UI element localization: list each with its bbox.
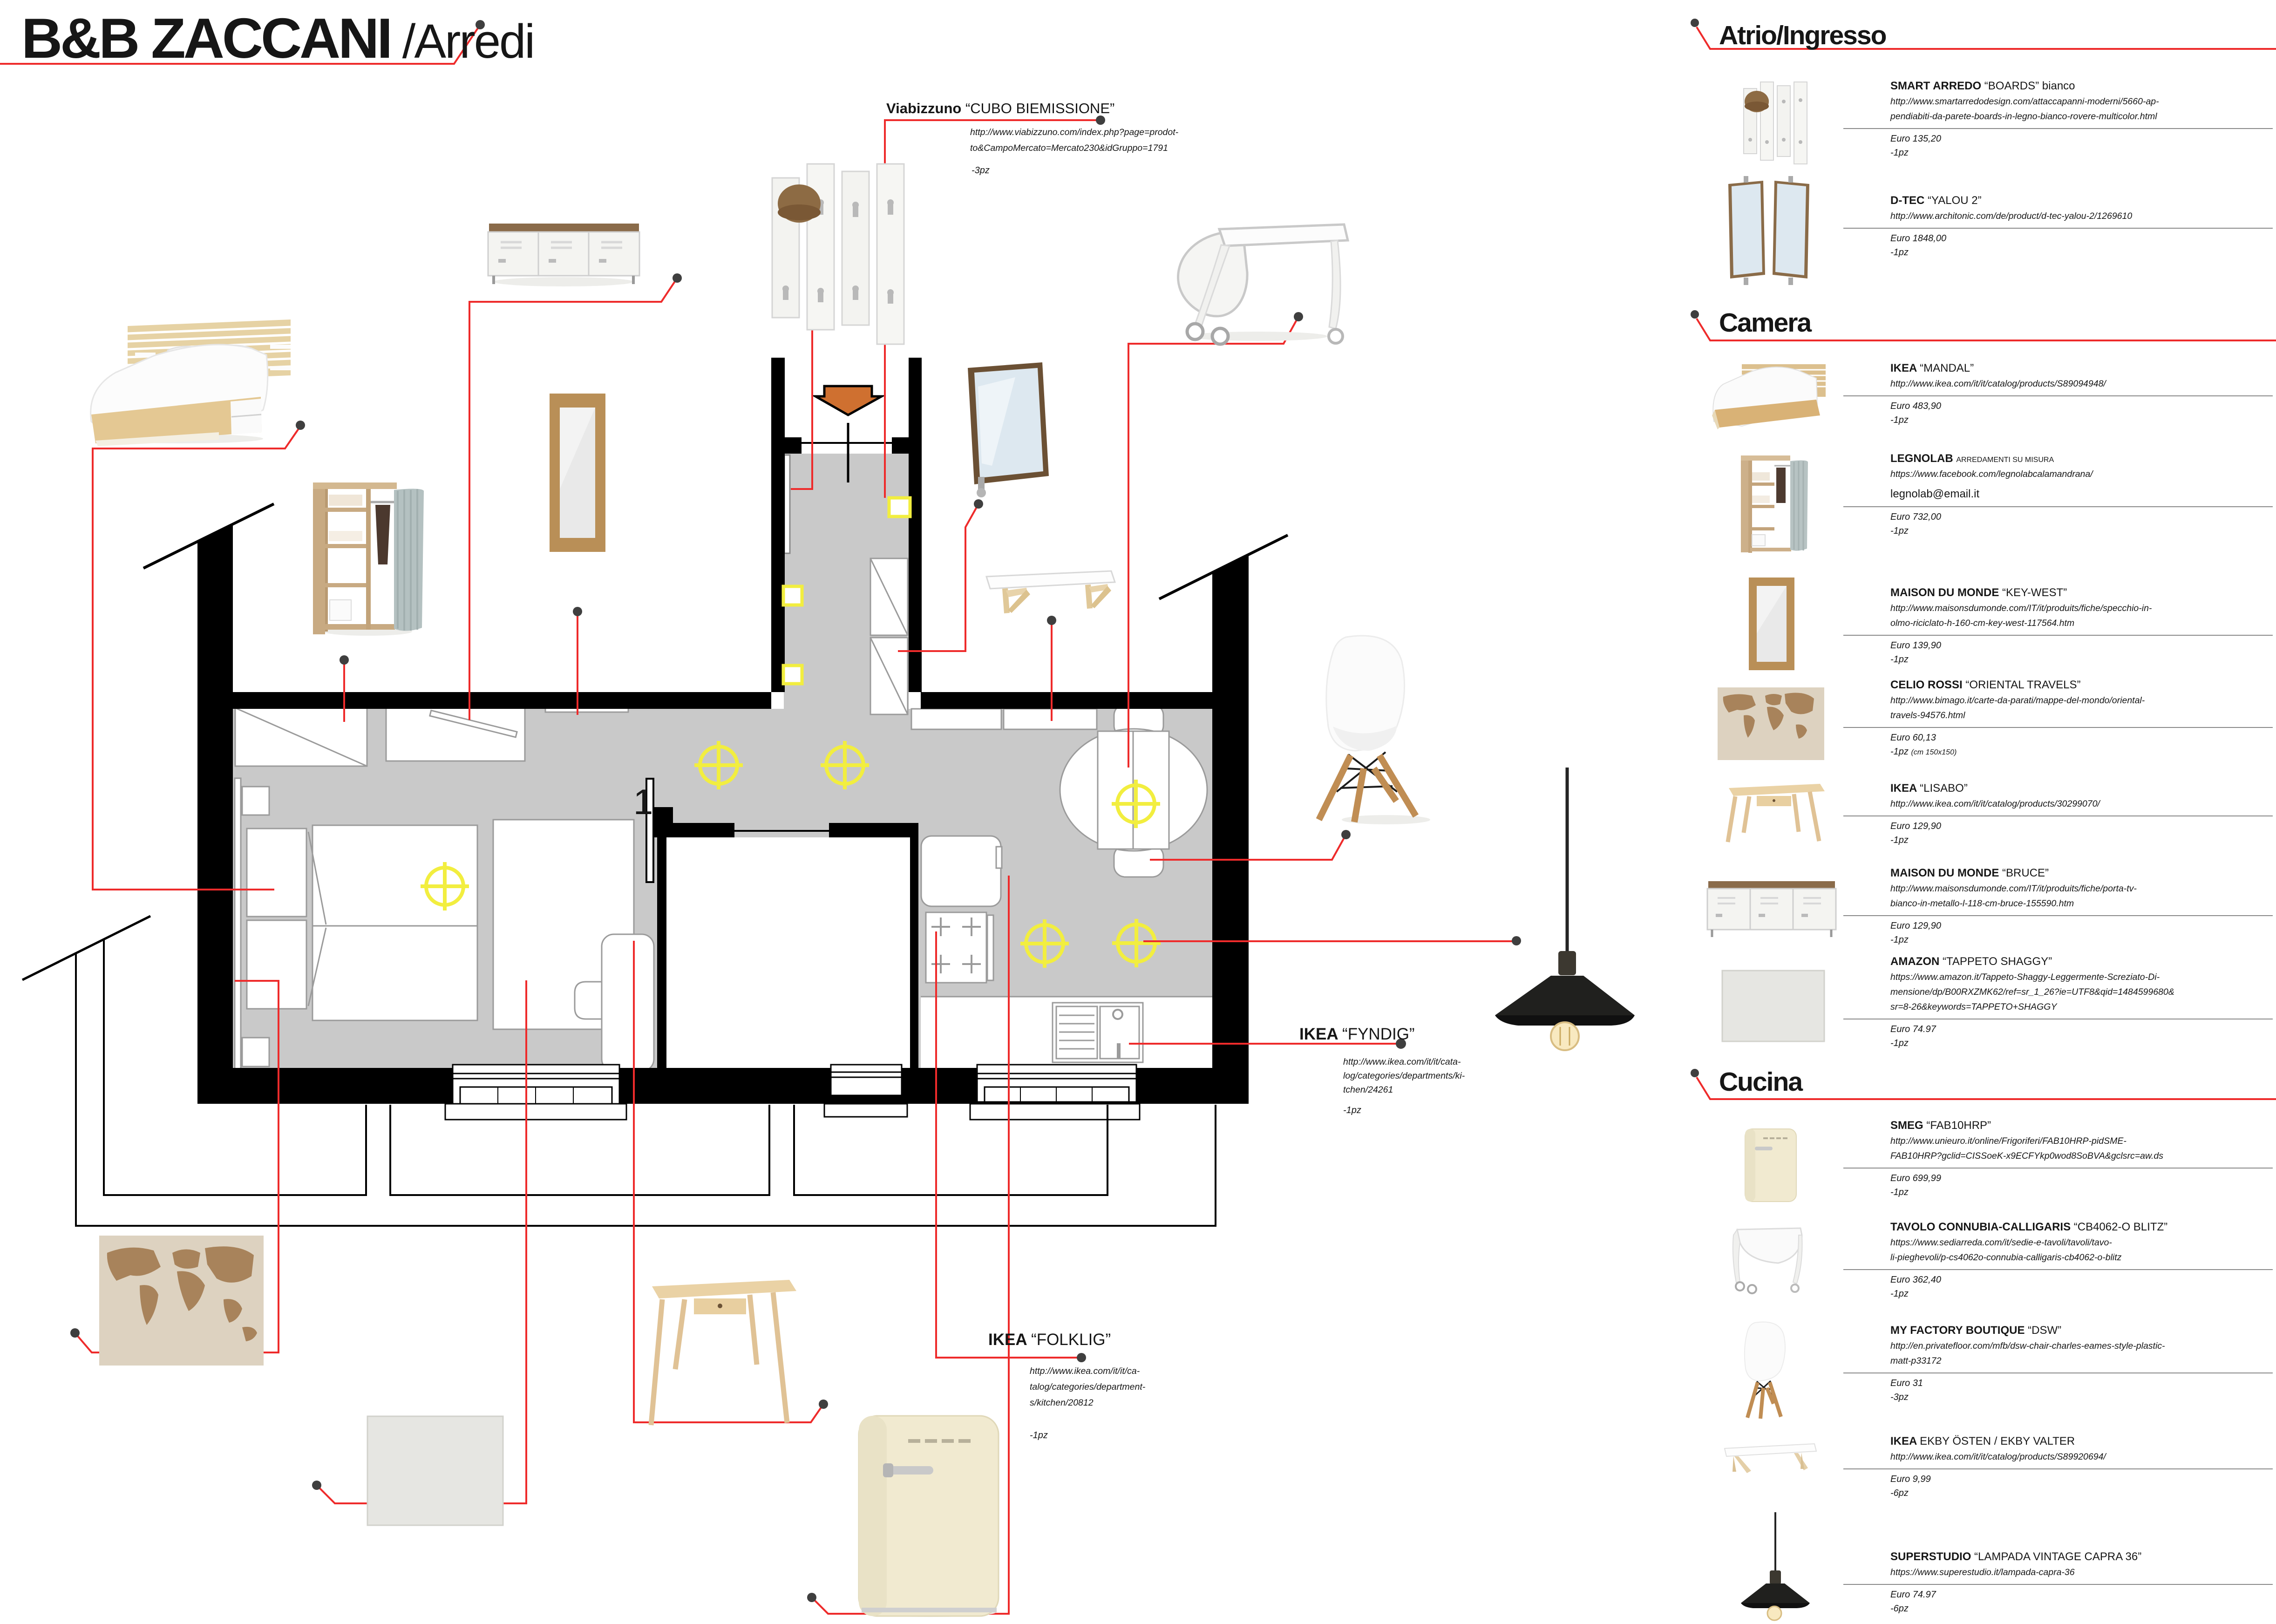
svg-text:Euro 699,99: Euro 699,99	[1890, 1173, 1941, 1183]
svg-text:http://www.viabizzuno.com/inde: http://www.viabizzuno.com/index.php?page…	[970, 127, 1179, 137]
svg-text:Euro 139,90: Euro 139,90	[1890, 640, 1941, 651]
svg-text:-6pz: -6pz	[1890, 1488, 1909, 1498]
svg-text:http://www.architonic.com/de/p: http://www.architonic.com/de/product/d-t…	[1890, 211, 2132, 221]
svg-text:-1pz: -1pz	[1890, 1289, 1909, 1299]
svg-text:Euro 60,13: Euro 60,13	[1890, 733, 1936, 743]
svg-text:matt-p33172: matt-p33172	[1890, 1356, 1942, 1366]
svg-text:talog/categories/department-: talog/categories/department-	[1030, 1382, 1146, 1392]
svg-text:-1pz: -1pz	[1890, 1038, 1909, 1048]
svg-text:Euro 74.97: Euro 74.97	[1890, 1024, 1936, 1034]
svg-text:MAISON DU MONDE “KEY-WEST”: MAISON DU MONDE “KEY-WEST”	[1890, 586, 2067, 599]
svg-text:https://www.superestudio.it/la: https://www.superestudio.it/lampada-capr…	[1890, 1567, 2075, 1577]
svg-text:bianco-in-metallo-l-118-cm-bru: bianco-in-metallo-l-118-cm-bruce-155590.…	[1890, 898, 2074, 909]
svg-text:mensione/dp/B00RXZMK62/ref=sr_: mensione/dp/B00RXZMK62/ref=sr_1_26?ie=UT…	[1890, 987, 2174, 997]
svg-text:pendiabiti-da-parete-boards-in: pendiabiti-da-parete-boards-in-legno-bia…	[1890, 111, 2157, 122]
svg-text:Atrio/Ingresso: Atrio/Ingresso	[1719, 20, 1886, 50]
svg-text:-3pz: -3pz	[1890, 1392, 1909, 1402]
svg-text:Viabizzuno “CUBO BIEMISSIONE”: Viabizzuno “CUBO BIEMISSIONE”	[886, 100, 1114, 116]
svg-text:https://www.amazon.it/Tappeto-: https://www.amazon.it/Tappeto-Shaggy-Leg…	[1890, 972, 2160, 982]
svg-text:-1pz: -1pz	[1890, 935, 1909, 945]
svg-text:AMAZON “TAPPETO SHAGGY”: AMAZON “TAPPETO SHAGGY”	[1890, 955, 2052, 968]
svg-text:IKEA “FOLKLIG”: IKEA “FOLKLIG”	[988, 1331, 1111, 1349]
svg-text:MY FACTORY BOUTIQUE “DSW”: MY FACTORY BOUTIQUE “DSW”	[1890, 1324, 2061, 1337]
svg-text:http://www.unieuro.it/online/F: http://www.unieuro.it/online/Frigoriferi…	[1890, 1136, 2127, 1146]
svg-text:-1pz: -1pz	[1890, 835, 1909, 845]
svg-text:http://www.smartarredodesign.c: http://www.smartarredodesign.com/attacca…	[1890, 96, 2159, 107]
svg-text:Cucina: Cucina	[1719, 1067, 1803, 1097]
svg-text:Euro 1848,00: Euro 1848,00	[1890, 233, 1946, 244]
svg-text:FAB10HRP?gclid=CISSoeK-x9ECFYk: FAB10HRP?gclid=CISSoeK-x9ECFYkp0wod8SoBV…	[1890, 1151, 2163, 1161]
svg-text:1: 1	[633, 782, 653, 822]
svg-text:http://www.ikea.com/it/it/cata: http://www.ikea.com/it/it/catalog/produc…	[1890, 1452, 2107, 1462]
svg-text:Euro 31: Euro 31	[1890, 1378, 1923, 1388]
svg-text:-6pz: -6pz	[1890, 1604, 1909, 1614]
svg-text:li-pieghevoli/p-cs4062o-connub: li-pieghevoli/p-cs4062o-connubia-calliga…	[1890, 1252, 2122, 1263]
svg-text:IKEA “MANDAL”: IKEA “MANDAL”	[1890, 362, 1974, 374]
svg-text:Euro 732,00: Euro 732,00	[1890, 512, 1941, 522]
svg-text:Euro 129,90: Euro 129,90	[1890, 921, 1941, 931]
svg-text:Euro 9,99: Euro 9,99	[1890, 1474, 1931, 1484]
svg-text:http://www.ikea.com/it/it/cata: http://www.ikea.com/it/it/catalog/produc…	[1890, 799, 2101, 809]
svg-text:-1pz (cm 150x150): -1pz (cm 150x150)	[1890, 747, 1957, 757]
svg-text:https://www.sediarreda.com/it/: https://www.sediarreda.com/it/sedie-e-ta…	[1890, 1237, 2112, 1248]
svg-text:CELIO ROSSI “ORIENTAL TRAVELS”: CELIO ROSSI “ORIENTAL TRAVELS”	[1890, 679, 2081, 691]
svg-text:s/kitchen/20812: s/kitchen/20812	[1030, 1398, 1094, 1408]
svg-text:-1pz: -1pz	[1890, 1187, 1909, 1197]
svg-text:B&B ZACCANI /Arredi: B&B ZACCANI /Arredi	[21, 7, 534, 70]
svg-text:http://www.ikea.com/it/it/ca-: http://www.ikea.com/it/it/ca-	[1030, 1366, 1140, 1376]
svg-text:http://www.ikea.com/it/it/cata: http://www.ikea.com/it/it/catalog/produc…	[1890, 379, 2107, 389]
svg-text:http://en.privatefloor.com/mfb: http://en.privatefloor.com/mfb/dsw-chair…	[1890, 1341, 2165, 1351]
svg-text:Euro 483,90: Euro 483,90	[1890, 401, 1941, 411]
svg-text:sr=8-26&keywords=TAPPETO+SHAGG: sr=8-26&keywords=TAPPETO+SHAGGY	[1890, 1002, 2058, 1012]
svg-text:SMEG “FAB10HRP”: SMEG “FAB10HRP”	[1890, 1119, 1991, 1132]
svg-text:http://www.maisonsdumonde.com/: http://www.maisonsdumonde.com/IT/it/prod…	[1890, 883, 2137, 894]
svg-text:SUPERSTUDIO “LAMPADA VINTAGE C: SUPERSTUDIO “LAMPADA VINTAGE CAPRA 36”	[1890, 1550, 2141, 1563]
svg-text:-1pz: -1pz	[1890, 415, 1909, 425]
svg-text:olmo-riciclato-h-160-cm-key-we: olmo-riciclato-h-160-cm-key-west-117564.…	[1890, 618, 2074, 628]
svg-text:D-TEC “YALOU 2”: D-TEC “YALOU 2”	[1890, 194, 1982, 207]
svg-text:-1pz: -1pz	[1890, 654, 1909, 665]
svg-text:http://www.bimago.it/carte-da-: http://www.bimago.it/carte-da-parati/map…	[1890, 695, 2145, 706]
svg-text:Euro 129,90: Euro 129,90	[1890, 821, 1941, 831]
svg-text:Euro 74.97: Euro 74.97	[1890, 1590, 1936, 1600]
svg-text:Camera: Camera	[1719, 308, 1812, 338]
svg-text:Euro 362,40: Euro 362,40	[1890, 1275, 1941, 1285]
svg-text:tchen/24261: tchen/24261	[1343, 1085, 1393, 1095]
svg-text:log/categories/departments/ki-: log/categories/departments/ki-	[1343, 1071, 1465, 1081]
svg-text:IKEA EKBY ÖSTEN / EKBY VALTER: IKEA EKBY ÖSTEN / EKBY VALTER	[1890, 1435, 2075, 1447]
svg-text:http://www.maisonsdumonde.com/: http://www.maisonsdumonde.com/IT/it/prod…	[1890, 603, 2152, 613]
svg-text:Euro 135,20: Euro 135,20	[1890, 134, 1941, 144]
svg-text:to&CampoMercato=Mercato230&idG: to&CampoMercato=Mercato230&idGruppo=1791	[970, 143, 1168, 153]
svg-text:-1pz: -1pz	[1030, 1430, 1048, 1441]
svg-text:-1pz: -1pz	[1343, 1105, 1361, 1115]
svg-text:legnolab@email.it: legnolab@email.it	[1890, 488, 1979, 500]
svg-text:SMART ARREDO “BOARDS” bianco: SMART ARREDO “BOARDS” bianco	[1890, 80, 2075, 92]
svg-text:MAISON DU MONDE “BRUCE”: MAISON DU MONDE “BRUCE”	[1890, 867, 2049, 879]
svg-text:-1pz: -1pz	[1890, 247, 1909, 258]
svg-text:IKEA “LISABO”: IKEA “LISABO”	[1890, 782, 1968, 795]
svg-text:-1pz: -1pz	[1890, 526, 1909, 536]
svg-text:-3pz: -3pz	[972, 165, 990, 176]
svg-text:http://www.ikea.com/it/it/cata: http://www.ikea.com/it/it/cata-	[1343, 1057, 1461, 1067]
svg-text:IKEA “FYNDIG”: IKEA “FYNDIG”	[1299, 1025, 1415, 1043]
svg-text:travels-94576.html: travels-94576.html	[1890, 710, 1965, 720]
svg-text:TAVOLO CONNUBIA-CALLIGARIS “CB: TAVOLO CONNUBIA-CALLIGARIS “CB4062-O BLI…	[1890, 1221, 2167, 1233]
svg-text:LEGNOLAB ARREDAMENTI SU MISURA: LEGNOLAB ARREDAMENTI SU MISURA	[1890, 452, 2054, 465]
svg-text:https://www.facebook.com/legno: https://www.facebook.com/legnolabcalaman…	[1890, 469, 2094, 479]
svg-text:-1pz: -1pz	[1890, 148, 1909, 158]
